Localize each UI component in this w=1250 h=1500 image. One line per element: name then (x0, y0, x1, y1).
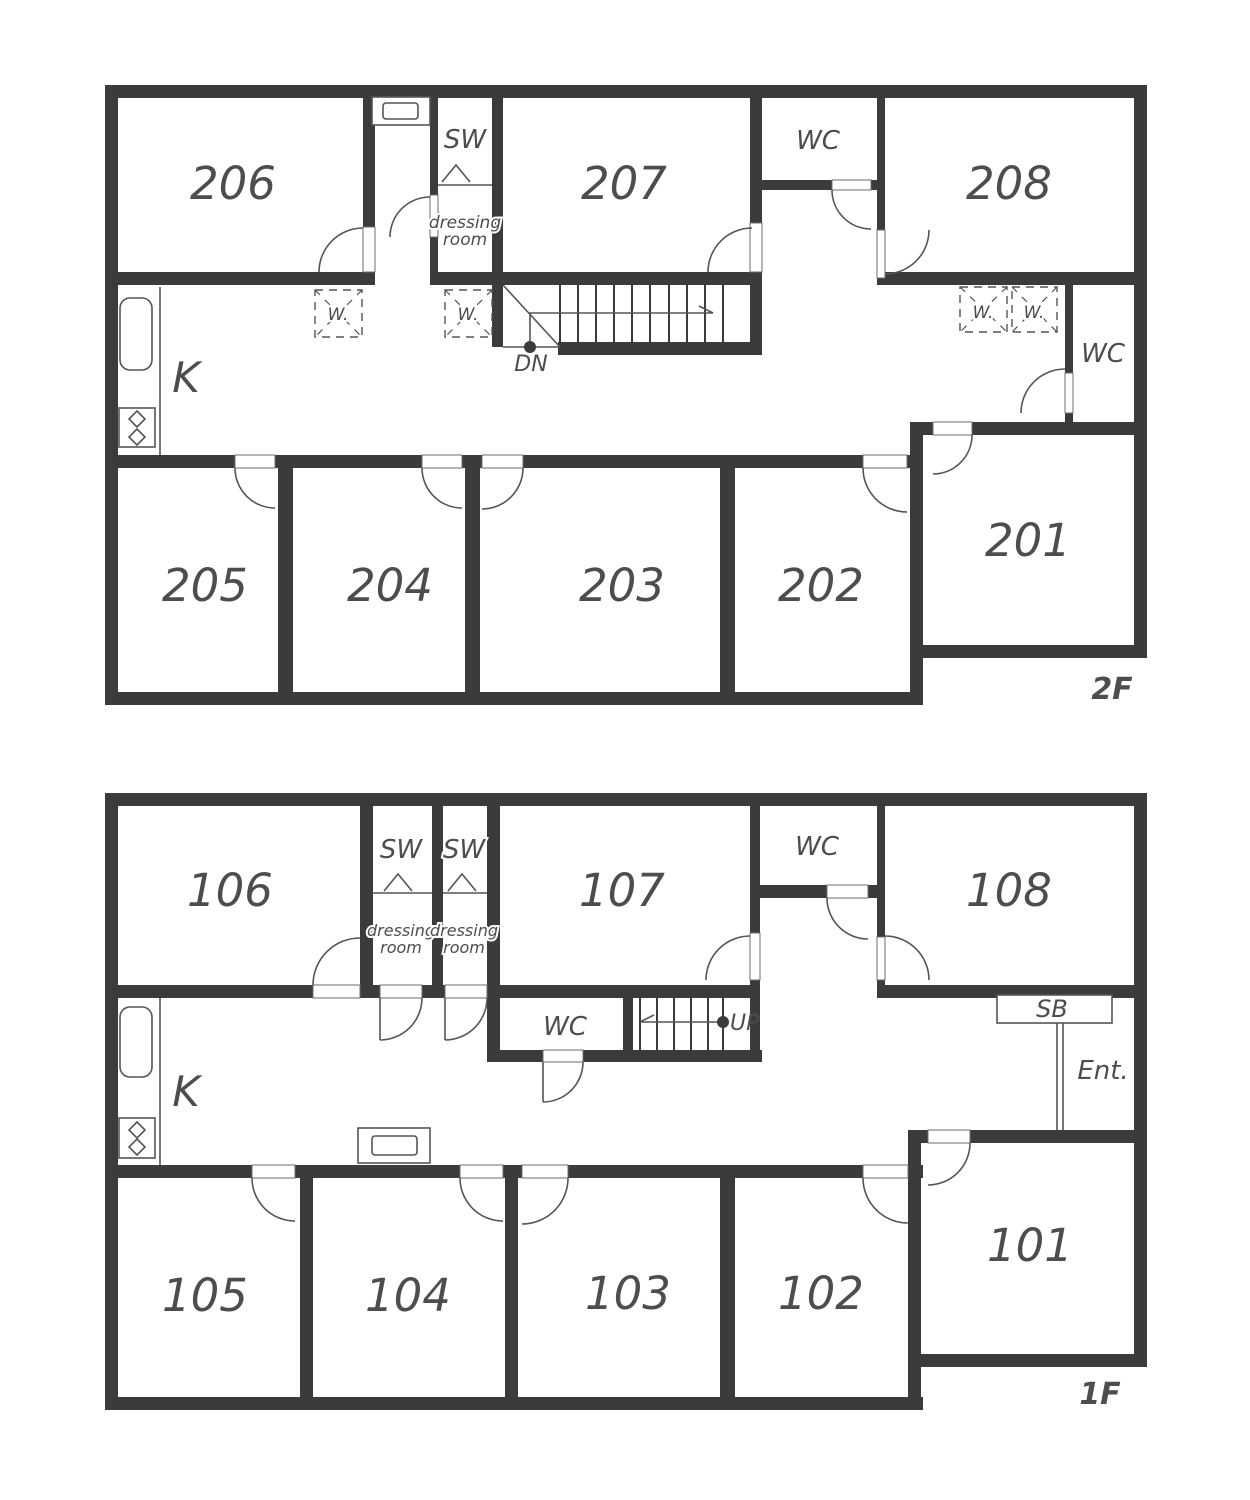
room-206-label: 206 (190, 157, 276, 210)
entrance-label: Ent. (1077, 1056, 1128, 1086)
door-swing-dressing2-1f (445, 998, 487, 1040)
stair-direction-arrow-1f (640, 1015, 723, 1022)
door-leaf-108 (877, 937, 885, 980)
room-107-label: 107 (579, 864, 665, 917)
washer-spot-label-4-2f: W. (1024, 303, 1045, 323)
door-swing-dressing-2f (390, 197, 430, 237)
door-swing-107 (706, 936, 750, 980)
room-207-label: 207 (581, 157, 667, 210)
door-leaf-208 (877, 230, 885, 278)
washer-pan-icon-2f (372, 97, 430, 125)
stair-treads-1f (640, 998, 723, 1050)
door-swing-207 (708, 228, 752, 272)
stove-icon-2f (119, 408, 155, 447)
closet-door-2-1f (443, 874, 487, 893)
door-leaf-104 (460, 1165, 503, 1178)
stair-start-dot-1f (717, 1016, 729, 1028)
door-leaf-dressing1-1f (380, 985, 422, 998)
room-201-label: 201 (985, 514, 1071, 567)
dressing-room-label-line2-2f: room (443, 230, 487, 250)
washer-spot-label-3-2f: W. (973, 303, 994, 323)
door-leaf-106 (313, 985, 360, 998)
door-openings-2f (235, 180, 1073, 468)
stair-up-label: UP (730, 1011, 760, 1036)
door-swing-101 (928, 1143, 970, 1185)
room-203-label: 203 (579, 559, 665, 612)
wc-top-label-2f: WC (796, 126, 841, 156)
wc-mid-label-1f: WC (543, 1012, 588, 1042)
door-leaf-201 (933, 422, 972, 435)
room-105-label: 105 (162, 1269, 248, 1322)
door-leaf-wc-mid-1f (543, 1050, 583, 1062)
door-leaf-102 (863, 1165, 908, 1178)
washer-spot-label-1-2f: W. (328, 305, 349, 325)
door-swing-201 (933, 435, 972, 474)
shoe-box-label: SB (1036, 995, 1068, 1023)
labels-2f: 206 207 208 201 205 204 203 202 WC WC SW… (162, 125, 1133, 707)
wc-top-label-1f: WC (795, 832, 840, 862)
kitchen-sink-icon-1f (120, 1007, 152, 1077)
stair-break-line-2f (503, 285, 560, 347)
room-106-label: 106 (187, 864, 273, 917)
door-leaf-wc-top-2f (832, 180, 871, 190)
door-swing-108 (885, 936, 929, 980)
door-leaf-204 (422, 455, 462, 468)
door-swing-204 (422, 468, 462, 508)
room-202-label: 202 (778, 559, 864, 612)
stair-direction-arrow-2f (530, 306, 713, 347)
door-leaf-205 (235, 455, 275, 468)
fixtures-1f (119, 874, 1112, 1165)
kitchen-label-2f: K (172, 353, 203, 402)
room-104-label: 104 (365, 1269, 451, 1322)
kitchen-label-1f: K (172, 1067, 203, 1116)
door-leaf-203 (482, 455, 523, 468)
room-102-label: 102 (778, 1267, 864, 1320)
shoe-closet-label-2f: SW (444, 125, 488, 155)
room-103-label: 103 (585, 1267, 671, 1320)
door-leaf-202 (863, 455, 907, 468)
room-108-label: 108 (966, 864, 1052, 917)
door-swing-wc-top-1f (827, 898, 868, 939)
door-swing-206 (319, 228, 363, 272)
door-leaf-wc-side-2f (1065, 373, 1073, 413)
door-swing-wc-mid-1f (543, 1062, 583, 1102)
door-swing-103 (522, 1178, 568, 1224)
door-leaf-105 (252, 1165, 295, 1178)
door-swing-208 (885, 230, 929, 274)
door-swing-wc-side-2f (1021, 369, 1065, 413)
floorplan-page: 206 207 208 201 205 204 203 202 WC WC SW… (0, 0, 1250, 1500)
closet-door-2f (438, 165, 492, 185)
door-swing-dressing1-1f (380, 998, 422, 1040)
door-swing-105 (252, 1178, 295, 1221)
washer-spot-label-2-2f: W. (458, 305, 479, 325)
floorplan-drawing: 206 207 208 201 205 204 203 202 WC WC SW… (0, 0, 1250, 1500)
door-swing-203 (482, 468, 523, 509)
door-leaf-206 (363, 227, 375, 272)
door-swing-202 (863, 468, 907, 512)
floor-2f: 206 207 208 201 205 204 203 202 WC WC SW… (105, 85, 1147, 707)
room-101-label: 101 (987, 1219, 1073, 1272)
closet-door-1-1f (373, 874, 432, 893)
stove-icon-1f (119, 1118, 155, 1158)
room-205-label: 205 (162, 559, 248, 612)
door-leaf-dressing2-1f (445, 985, 487, 998)
shoe-closet-label-1-1f: SW (380, 835, 424, 865)
kitchen-sink-icon-2f (120, 298, 152, 370)
door-swing-205 (235, 468, 275, 508)
room-208-label: 208 (966, 157, 1052, 210)
door-leaf-207 (750, 223, 762, 272)
room-204-label: 204 (347, 559, 433, 612)
door-swing-106 (313, 938, 360, 985)
dressing1-label-line2-1f: room (380, 938, 422, 957)
washer-pan-icon-1f (358, 1128, 430, 1163)
door-swing-wc-top-2f (832, 190, 871, 229)
door-leaf-107 (750, 933, 760, 980)
staircase-1f (640, 998, 729, 1050)
wc-side-label-2f: WC (1081, 339, 1126, 369)
door-leaf-wc-top-1f (827, 885, 868, 898)
door-swing-104 (460, 1178, 503, 1221)
floor-1f: 106 107 108 101 105 104 103 102 WC WC SW… (105, 793, 1147, 1412)
stair-dn-label: DN (514, 352, 547, 377)
door-leaf-101 (928, 1130, 970, 1143)
dressing2-label-line2-1f: room (443, 938, 485, 957)
floor-label-1f: 1F (1079, 1377, 1121, 1412)
door-leaf-103 (522, 1165, 568, 1178)
entrance-partition (1057, 1023, 1063, 1130)
door-swing-102 (863, 1178, 908, 1223)
floor-label-2f: 2F (1091, 672, 1133, 707)
shoe-closet-label-2-1f: SW (443, 835, 487, 865)
